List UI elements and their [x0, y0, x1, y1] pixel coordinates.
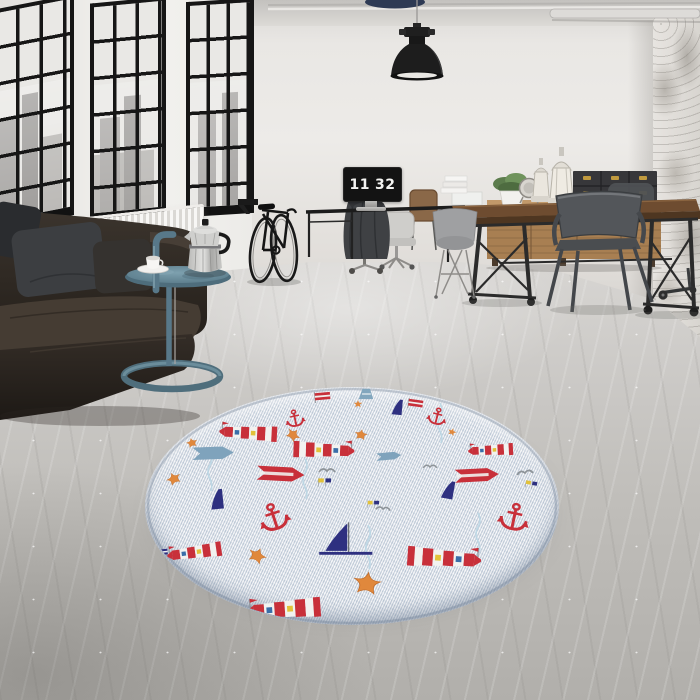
rug-motif-anchor — [496, 501, 533, 532]
eames-chair — [433, 209, 477, 299]
rug-motif-lh — [293, 439, 354, 460]
paper-stack — [441, 176, 482, 205]
clock-hours: 11 — [350, 177, 370, 193]
rug-motif-boat — [319, 522, 372, 553]
rug-motif-sail — [441, 480, 455, 500]
rug-motif-smallstar — [447, 427, 457, 437]
clock-minutes: 32 — [375, 177, 395, 193]
rug-motif-gull — [517, 470, 533, 475]
bike-handlebar — [287, 209, 296, 213]
rug-motif-star — [186, 437, 198, 448]
ceiling-pipe-large — [550, 9, 700, 18]
ceiling-pipes — [268, 0, 700, 22]
rug-motif-navyflag — [156, 549, 168, 556]
rug-motif-gull — [319, 469, 335, 472]
rug-motif-lh — [246, 594, 321, 622]
room-photo: 11 32 — [0, 0, 700, 700]
rug-motif-lh — [407, 543, 482, 571]
moka-handle — [219, 234, 229, 253]
bicycle — [247, 203, 301, 286]
rug-motif-lh — [219, 422, 277, 443]
rug-motif-pennant — [314, 391, 330, 403]
rug-motif-streak — [303, 459, 307, 499]
rug-motif-arrowblue — [376, 451, 401, 461]
rug-motif-arrowred — [257, 466, 305, 483]
rug-motif-star — [353, 571, 381, 595]
rug-motif-lh — [166, 539, 222, 563]
rug-motif-gull — [423, 465, 437, 468]
rug-motif-star — [165, 471, 182, 487]
rug-motif-lh — [468, 441, 513, 457]
rug-motif-arrowred — [455, 467, 499, 482]
rug-motif-streak — [366, 525, 370, 569]
rug-motif-arrowblue — [192, 446, 234, 460]
rug-motif-smallstar — [354, 400, 363, 407]
sofa-pillow-charcoal — [10, 221, 107, 298]
bike-saddle — [258, 203, 275, 210]
rug-motif-star — [354, 429, 368, 440]
rug-motif-star — [247, 545, 268, 565]
rug-motif-pennant — [408, 398, 424, 410]
moka-pot — [184, 219, 229, 278]
rug-motif-flags — [525, 480, 537, 489]
rug-motif-layer — [156, 389, 537, 622]
monitor-base — [356, 207, 386, 211]
rug-motif-flags — [318, 478, 331, 486]
pendant-lamp — [391, 0, 444, 81]
rug-motif-star — [285, 426, 302, 443]
eames-wire-base — [436, 250, 474, 296]
rug-motif-gull — [376, 507, 391, 511]
rug-motif-pennant — [184, 594, 201, 607]
rug-pattern — [145, 387, 559, 625]
rug-motif-streak — [476, 513, 480, 553]
rug-motif-anchor — [283, 408, 306, 428]
rug-motif-sail — [392, 399, 403, 415]
bike-rack — [238, 199, 258, 214]
rug-motif-anchor — [254, 500, 293, 534]
rug-motif-sail — [209, 489, 224, 510]
monitor-flip-clock: 11 32 — [343, 167, 402, 202]
